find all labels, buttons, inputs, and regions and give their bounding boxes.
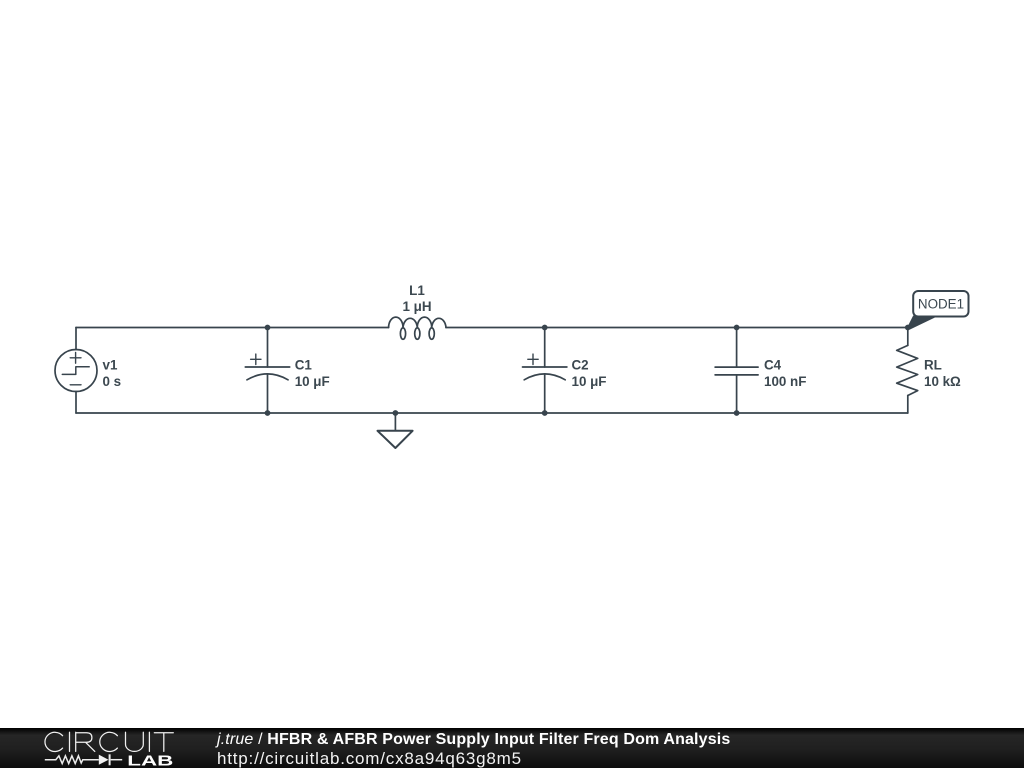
svg-text:L1: L1	[409, 283, 425, 298]
svg-text:10 kΩ: 10 kΩ	[924, 374, 961, 389]
svg-text:0 s: 0 s	[103, 374, 122, 389]
svg-text:v1: v1	[103, 358, 118, 373]
svg-text:LAB: LAB	[127, 753, 173, 768]
svg-text:NODE1: NODE1	[918, 297, 964, 312]
svg-text:10 μF: 10 μF	[295, 374, 330, 389]
svg-text:10 μF: 10 μF	[572, 374, 607, 389]
svg-text:1 μH: 1 μH	[402, 299, 431, 314]
svg-text:RL: RL	[924, 358, 942, 373]
svg-text:C4: C4	[764, 358, 782, 373]
svg-text:100 nF: 100 nF	[764, 374, 806, 389]
svg-text:C2: C2	[572, 358, 589, 373]
svg-text:C1: C1	[295, 358, 313, 373]
